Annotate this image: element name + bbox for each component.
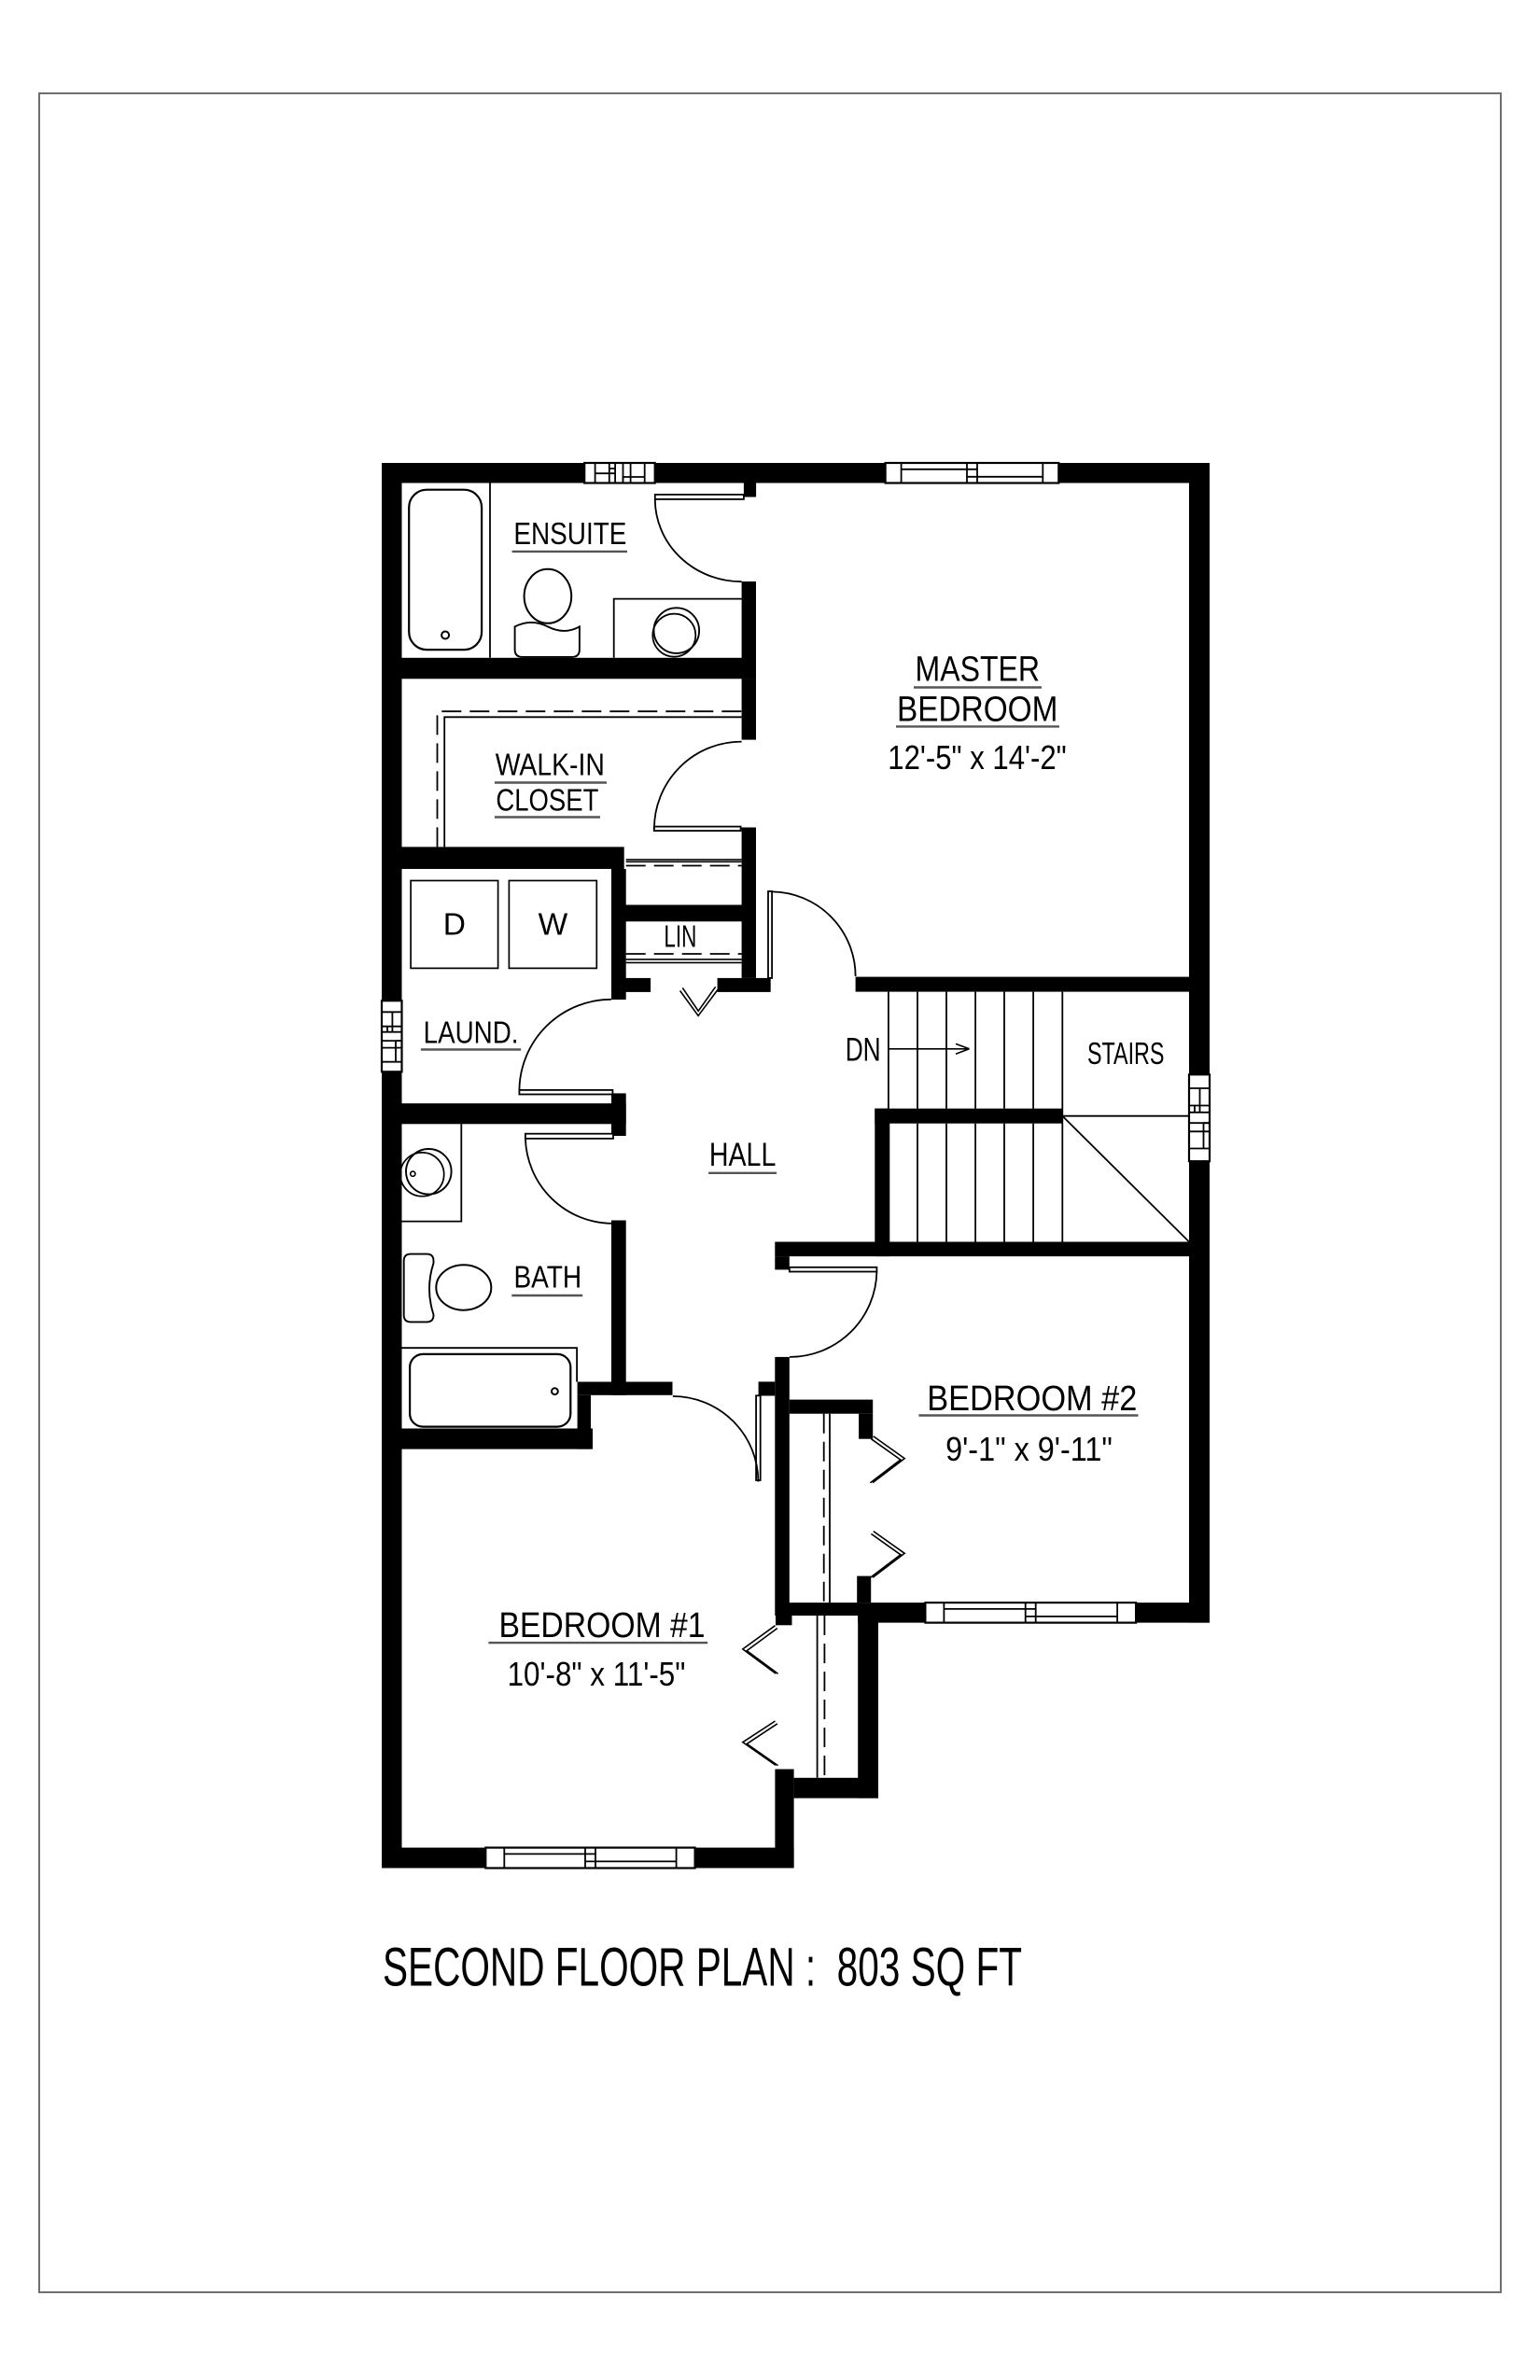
svg-text:STAIRS: STAIRS (1087, 1037, 1165, 1071)
svg-text:10'-8" x 11'-5": 10'-8" x 11'-5" (508, 1655, 686, 1693)
svg-text:12'-5" x 14'-2": 12'-5" x 14'-2" (888, 738, 1066, 777)
svg-text:BATH: BATH (513, 1260, 581, 1295)
svg-text:DN: DN (846, 1032, 881, 1069)
svg-text:W: W (539, 908, 568, 943)
svg-text:CLOSET: CLOSET (496, 784, 598, 819)
svg-text:LIN: LIN (664, 919, 696, 954)
svg-text:BEDROOM #1: BEDROOM #1 (498, 1606, 705, 1645)
svg-text:SECOND FLOOR PLAN : 803 SQ FT: SECOND FLOOR PLAN : 803 SQ FT (383, 1938, 1022, 1998)
svg-text:BEDROOM #2: BEDROOM #2 (927, 1379, 1137, 1419)
svg-text:ENSUITE: ENSUITE (513, 517, 626, 552)
svg-text:HALL: HALL (709, 1137, 777, 1173)
svg-text:MASTER: MASTER (916, 651, 1041, 690)
svg-text:LAUND.: LAUND. (424, 1016, 519, 1051)
svg-text:D: D (443, 908, 466, 943)
svg-text:BEDROOM: BEDROOM (897, 691, 1057, 730)
svg-text:9'-1" x 9'-11": 9'-1" x 9'-11" (945, 1430, 1113, 1468)
svg-text:WALK-IN: WALK-IN (496, 749, 605, 783)
